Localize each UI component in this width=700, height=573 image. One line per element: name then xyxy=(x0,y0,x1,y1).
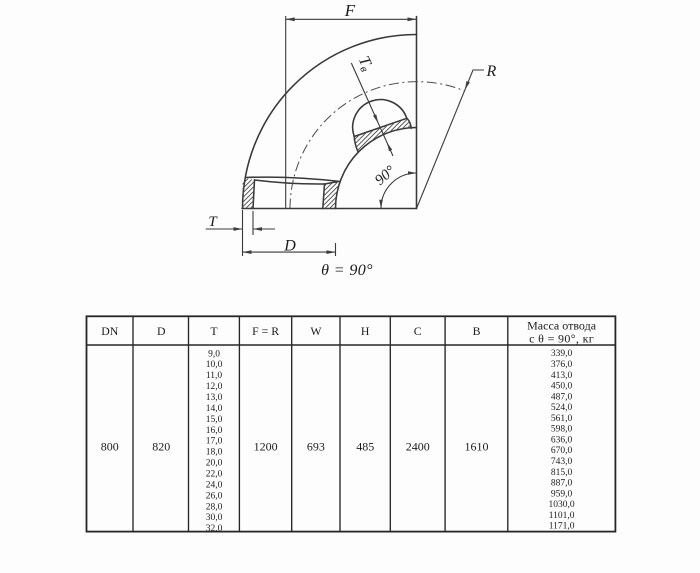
svg-text:485: 485 xyxy=(356,440,374,454)
svg-text:598,0: 598,0 xyxy=(551,425,573,435)
svg-text:16,0: 16,0 xyxy=(206,426,223,436)
svg-text:820: 820 xyxy=(152,440,170,454)
svg-text:1200: 1200 xyxy=(254,440,278,454)
svg-text:D: D xyxy=(157,324,166,338)
svg-text:887,0: 887,0 xyxy=(551,479,573,489)
svg-text:670,0: 670,0 xyxy=(551,446,573,456)
svg-text:18,0: 18,0 xyxy=(206,448,223,458)
svg-text:22,0: 22,0 xyxy=(206,470,223,480)
svg-text:800: 800 xyxy=(101,440,119,454)
svg-text:450,0: 450,0 xyxy=(551,382,573,392)
svg-text:9,0: 9,0 xyxy=(208,349,220,359)
svg-text:20,0: 20,0 xyxy=(206,459,223,469)
svg-text:D: D xyxy=(283,238,296,255)
svg-text:959,0: 959,0 xyxy=(551,489,573,499)
svg-text:W: W xyxy=(310,324,322,338)
svg-text:B: B xyxy=(473,324,481,338)
svg-text:28,0: 28,0 xyxy=(206,502,223,512)
svg-text:26,0: 26,0 xyxy=(206,491,223,501)
svg-text:Масса отвода: Масса отвода xyxy=(527,319,597,333)
svg-text:T: T xyxy=(210,324,218,338)
svg-text:θ = 90°: θ = 90° xyxy=(321,262,373,279)
svg-text:13,0: 13,0 xyxy=(206,393,223,403)
svg-text:487,0: 487,0 xyxy=(551,392,573,402)
svg-text:17,0: 17,0 xyxy=(206,437,223,447)
svg-text:693: 693 xyxy=(307,440,325,454)
svg-text:1030,0: 1030,0 xyxy=(549,500,575,510)
svg-text:1610: 1610 xyxy=(465,440,489,454)
svg-text:с θ = 90°, кг: с θ = 90°, кг xyxy=(529,332,594,346)
svg-text:F: F xyxy=(344,1,356,20)
svg-text:524,0: 524,0 xyxy=(551,403,573,413)
svg-text:F = R: F = R xyxy=(252,324,279,338)
svg-text:636,0: 636,0 xyxy=(551,435,573,445)
svg-text:15,0: 15,0 xyxy=(206,415,223,425)
svg-text:413,0: 413,0 xyxy=(551,371,573,381)
svg-text:1101,0: 1101,0 xyxy=(549,511,575,521)
svg-text:32,0: 32,0 xyxy=(206,524,223,534)
svg-text:30,0: 30,0 xyxy=(206,513,223,523)
svg-text:C: C xyxy=(414,324,422,338)
svg-text:DN: DN xyxy=(101,324,119,338)
svg-text:10,0: 10,0 xyxy=(206,360,223,370)
svg-text:561,0: 561,0 xyxy=(551,414,573,424)
svg-text:H: H xyxy=(361,324,370,338)
svg-text:12,0: 12,0 xyxy=(206,382,223,392)
svg-text:11,0: 11,0 xyxy=(206,371,223,381)
svg-text:743,0: 743,0 xyxy=(551,457,573,467)
svg-text:1171,0: 1171,0 xyxy=(549,522,575,532)
svg-text:24,0: 24,0 xyxy=(206,480,223,490)
svg-text:339,0: 339,0 xyxy=(551,349,573,359)
svg-text:815,0: 815,0 xyxy=(551,468,573,478)
svg-text:14,0: 14,0 xyxy=(206,404,223,414)
svg-text:376,0: 376,0 xyxy=(551,360,573,370)
svg-text:2400: 2400 xyxy=(406,440,430,454)
svg-text:R: R xyxy=(486,63,497,80)
